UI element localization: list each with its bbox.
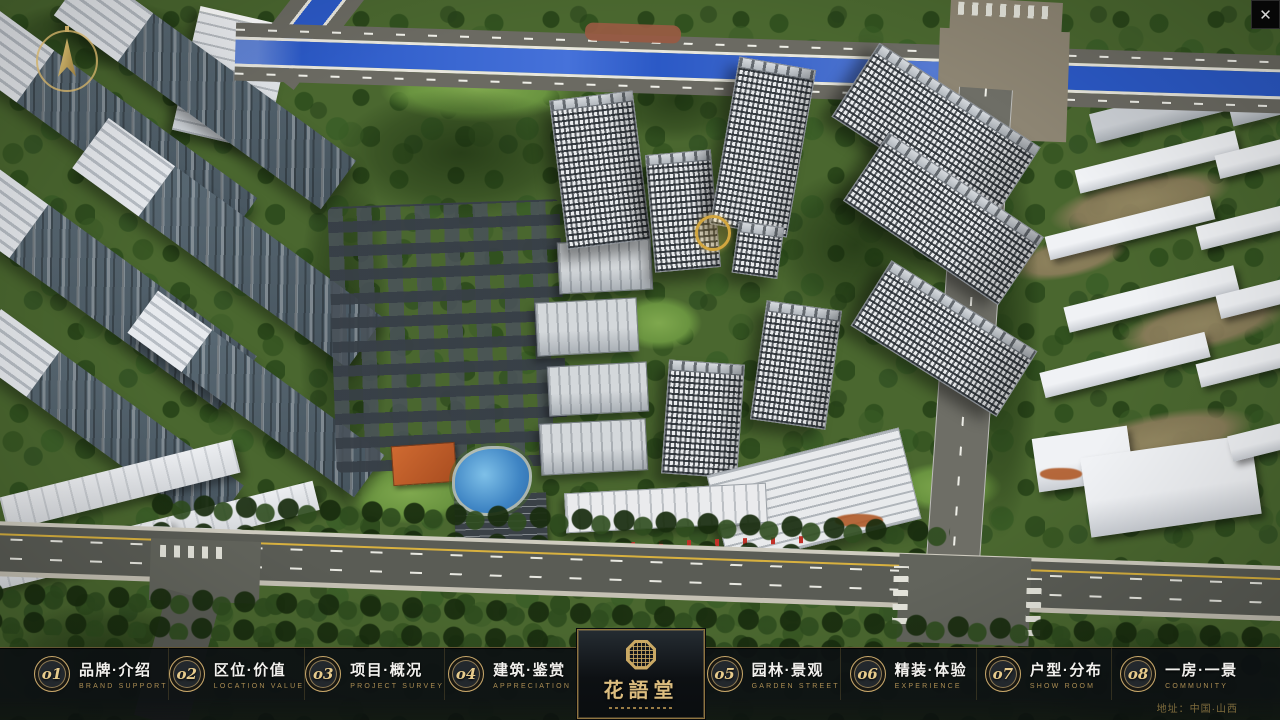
menu-item-text: 项目·概况 PROJECT SURVEY [350,659,444,690]
project-tagline-rule [609,707,673,709]
menu-group-left: o1 品牌·介绍 BRAND SUPPORT o2 区位·价值 LOCATION… [34,648,574,700]
menu-item-text: 一房·一景 COMMUNITY [1165,659,1238,690]
menu-item-label: 户型·分布 [1030,659,1103,680]
menu-number-badge: o7 [985,656,1021,692]
close-button[interactable]: ✕ [1251,0,1280,29]
menu-number-badge: o2 [169,656,205,692]
seal-icon [626,640,656,670]
menu-item-label: 一房·一景 [1165,659,1238,680]
residential-tower [661,359,745,478]
menu-item-architecture[interactable]: o4 建筑·鉴赏 APPRECIATION [444,648,574,700]
menu-item-interior-experience[interactable]: o6 精装·体验 EXPERIENCE [840,648,975,700]
menu-item-number: o4 [456,665,476,683]
menu-number-badge: o3 [305,656,341,692]
menu-item-room-view[interactable]: o8 一房·一景 COMMUNITY [1111,648,1246,700]
menu-item-floorplan-distribution[interactable]: o7 户型·分布 SHOW ROOM [976,648,1111,700]
menu-item-text: 品牌·介绍 BRAND SUPPORT [79,659,168,690]
menu-item-number: o7 [993,665,1013,683]
menu-item-subtitle: BRAND SUPPORT [79,683,168,690]
menu-item-number: o6 [857,665,877,683]
clubhouse [391,442,458,486]
menu-item-landscape[interactable]: o5 园林·景观 GARDEN STREET [706,648,840,700]
address-text: 地址：中国·山西 [1157,700,1238,715]
app-window: ✕ o1 品牌·介绍 BRAND SUPPORT o2 区位·价值 LOCATI… [0,0,1280,720]
residential-tower [549,90,651,249]
menu-number-badge: o8 [1120,656,1156,692]
menu-number-badge: o6 [850,656,886,692]
masterplan-3d-view[interactable] [0,0,1280,720]
residential-tower [645,149,721,272]
midrise-building [547,361,649,416]
compass-needle-icon [52,38,82,82]
menu-item-number: o1 [42,665,62,683]
menu-item-subtitle: SHOW ROOM [1030,683,1095,690]
landmark-ring [695,215,731,251]
menu-number-badge: o5 [707,656,743,692]
menu-item-subtitle: COMMUNITY [1165,683,1228,690]
compass-north-notch [65,26,69,32]
villa-district [327,199,568,473]
menu-number-badge: o4 [448,656,484,692]
compass-icon [36,30,98,92]
menu-item-subtitle: LOCATION VALUE [214,683,304,690]
menu-item-project-overview[interactable]: o3 项目·概况 PROJECT SURVEY [304,648,444,700]
midrise-building [535,297,640,356]
menu-item-label: 精装·体验 [895,659,968,680]
menu-item-text: 园林·景观 GARDEN STREET [752,659,840,690]
menu-item-label: 园林·景观 [752,659,825,680]
menu-item-number: o5 [714,665,734,683]
menu-item-label: 区位·价值 [214,659,287,680]
menu-item-text: 户型·分布 SHOW ROOM [1030,659,1103,690]
menu-item-text: 精装·体验 EXPERIENCE [895,659,968,690]
menu-item-label: 建筑·鉴赏 [493,659,566,680]
project-logo-button[interactable]: 花語堂 [577,629,705,719]
running-track [585,22,682,43]
residential-tower [732,221,785,279]
menu-item-subtitle: PROJECT SURVEY [350,683,444,690]
seal-pattern [629,643,653,667]
menu-item-brand-intro[interactable]: o1 品牌·介绍 BRAND SUPPORT [34,648,168,700]
menu-item-number: o3 [313,665,333,683]
crosswalk [160,545,224,559]
menu-item-label: 项目·概况 [350,659,423,680]
menu-item-location-value[interactable]: o2 区位·价值 LOCATION VALUE [168,648,304,700]
menu-group-right: o5 园林·景观 GARDEN STREET o6 精装·体验 EXPERIEN… [706,648,1246,700]
project-title: 花語堂 [604,674,679,703]
midrise-building [539,418,649,476]
menu-item-label: 品牌·介绍 [79,659,152,680]
menu-item-subtitle: EXPERIENCE [895,683,962,690]
close-icon: ✕ [1259,6,1272,24]
menu-item-text: 建筑·鉴赏 APPRECIATION [493,659,571,690]
menu-item-number: o8 [1128,665,1148,683]
menu-number-badge: o1 [34,656,70,692]
menu-item-subtitle: APPRECIATION [493,683,571,690]
menu-item-number: o2 [177,665,197,683]
menu-item-text: 区位·价值 LOCATION VALUE [214,659,304,690]
menu-item-subtitle: GARDEN STREET [752,683,840,690]
shrub [1040,468,1082,480]
